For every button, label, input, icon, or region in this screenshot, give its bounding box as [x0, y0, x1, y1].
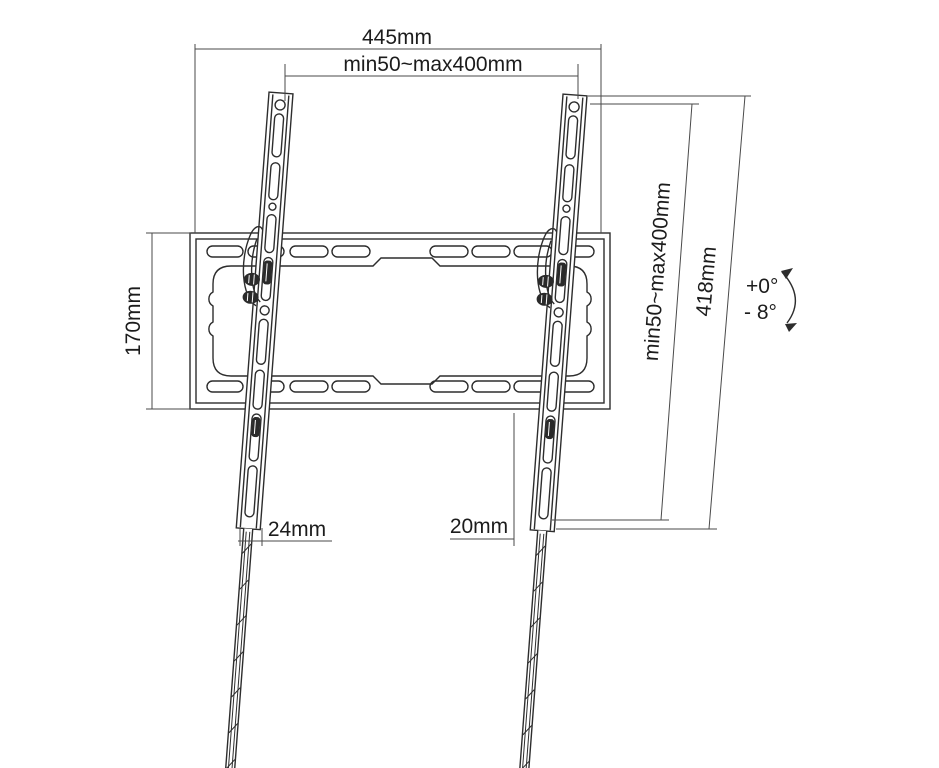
label-plate-height: 170mm — [122, 286, 145, 356]
label-hole-range-top: min50~max400mm — [343, 53, 522, 76]
label-hole-range-side: min50~max400mm — [640, 181, 675, 361]
tv-mount-diagram-page: 445mm min50~max400mm 170mm min50~max400m… — [0, 0, 939, 768]
dimension-plate-height — [146, 233, 191, 409]
label-bracket-length: 418mm — [692, 246, 721, 318]
label-right-offset: 20mm — [450, 515, 508, 538]
label-overall-width: 445mm — [362, 26, 432, 49]
tv-mount-diagram: 445mm min50~max400mm 170mm min50~max400m… — [0, 0, 939, 768]
label-tilt-down: - 8° — [744, 301, 777, 324]
label-tilt-up: +0° — [746, 275, 778, 298]
left-bracket-arm — [202, 91, 293, 768]
label-left-offset: 24mm — [268, 518, 326, 541]
right-bracket-arm — [496, 93, 587, 768]
tilt-rotation-arrow-icon — [781, 268, 797, 332]
